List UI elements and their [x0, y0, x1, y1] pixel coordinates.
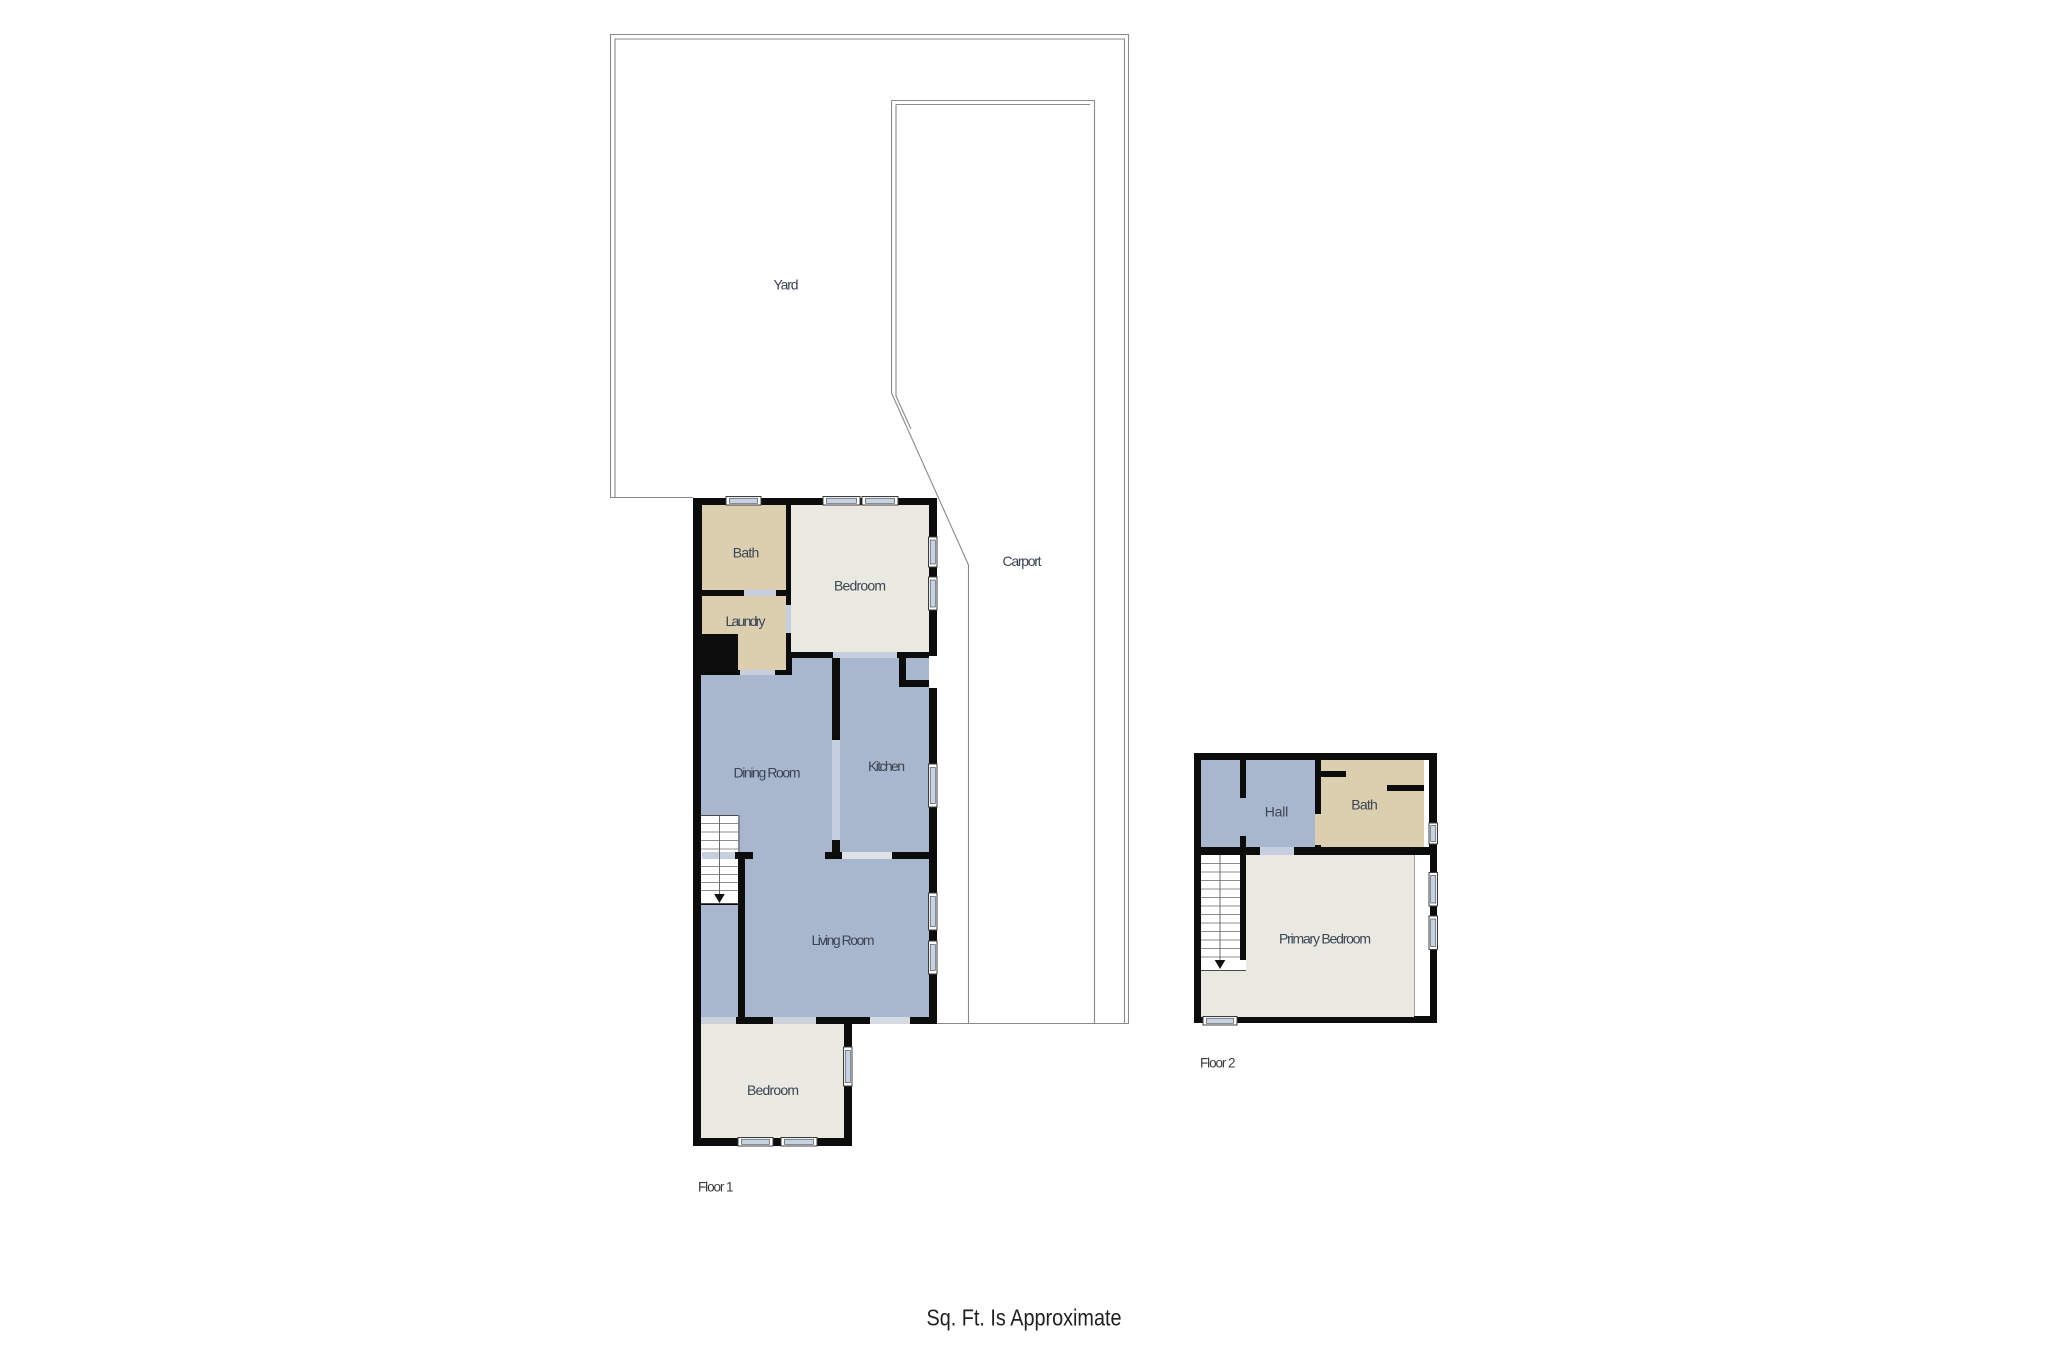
svg-text:Hall: Hall: [1265, 804, 1289, 820]
svg-text:Floor 2: Floor 2: [1200, 1056, 1236, 1071]
svg-text:Bedroom: Bedroom: [747, 1082, 799, 1098]
svg-text:Living Room: Living Room: [812, 932, 875, 948]
svg-text:Laundry: Laundry: [726, 613, 766, 629]
svg-text:Sq. Ft. Is Approximate: Sq. Ft. Is Approximate: [927, 1305, 1122, 1331]
svg-text:Bath: Bath: [733, 545, 760, 561]
svg-text:Primary Bedroom: Primary Bedroom: [1279, 931, 1371, 947]
svg-text:Kitchen: Kitchen: [868, 758, 905, 774]
svg-text:Dining Room: Dining Room: [734, 765, 801, 781]
svg-text:Carport: Carport: [1003, 553, 1042, 569]
svg-text:Floor 1: Floor 1: [698, 1180, 734, 1195]
svg-text:Yard: Yard: [774, 277, 799, 293]
svg-text:Bedroom: Bedroom: [834, 578, 886, 594]
svg-text:Bath: Bath: [1351, 797, 1378, 813]
